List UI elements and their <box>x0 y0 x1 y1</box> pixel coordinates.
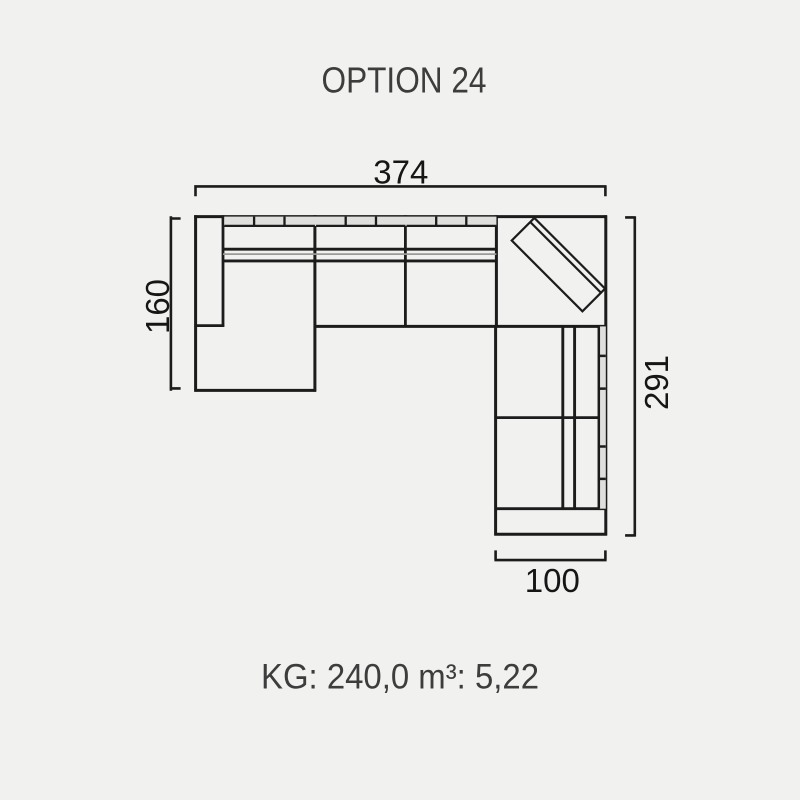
svg-text:374: 374 <box>373 154 428 191</box>
svg-text:160: 160 <box>139 279 176 334</box>
svg-text:KG: 240,0 m³: 5,22: KG: 240,0 m³: 5,22 <box>261 658 539 697</box>
svg-text:100: 100 <box>525 562 580 599</box>
svg-text:OPTION 24: OPTION 24 <box>322 60 487 101</box>
svg-text:291: 291 <box>638 355 675 410</box>
